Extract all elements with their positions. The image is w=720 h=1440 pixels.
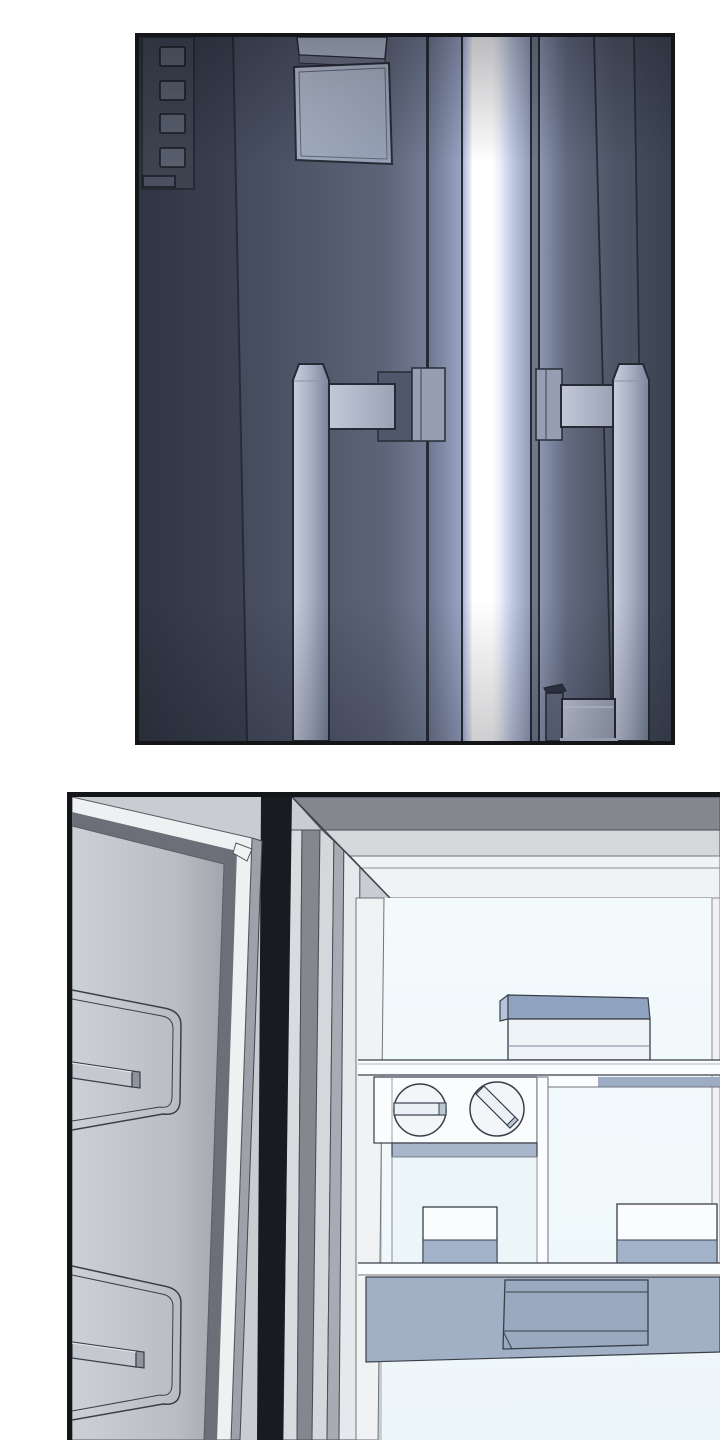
bottom-drawer-recess [503,1280,648,1349]
open-fridge-art [72,797,720,1440]
container-right-band [617,1240,717,1263]
compartment-divider [537,1077,548,1265]
cabinet-top-light-band [322,830,720,856]
cabinet-front-frame [283,830,360,1440]
cabinet-liner-band [350,856,720,898]
drawer-compartment-left [374,1077,548,1265]
drawer-top-band [392,1143,537,1157]
shelf-underside-shadow [598,1077,720,1087]
comic-page [0,0,720,1440]
closed-fridge-art [139,37,671,741]
panel-open-fridge [67,792,720,1440]
top-shelf-storage-box [500,995,650,1060]
small-container-left [423,1207,497,1263]
jar-lid-diagonal-grip [470,1082,524,1136]
jar-lid-horizontal-grip [394,1084,446,1136]
storage-box-front [508,1019,650,1060]
shelf-upper-band [358,1060,720,1076]
jar-grip-bar-cap [439,1103,446,1115]
cabinet-top-dark-band [292,797,720,830]
shelf-lower [358,1263,720,1277]
storage-box-lid [508,995,650,1019]
panel-closed-fridge [135,33,675,745]
door-bar-lower-cap [136,1351,144,1368]
jar-grip-bar [394,1103,446,1115]
door-bar-upper-cap [132,1071,140,1088]
container-left-band [423,1240,497,1263]
panel-vignette [139,37,671,741]
shelf-underside-light [548,1077,598,1087]
open-door [72,797,262,1440]
bottom-drawer-front [366,1277,720,1362]
small-container-right [617,1204,717,1263]
